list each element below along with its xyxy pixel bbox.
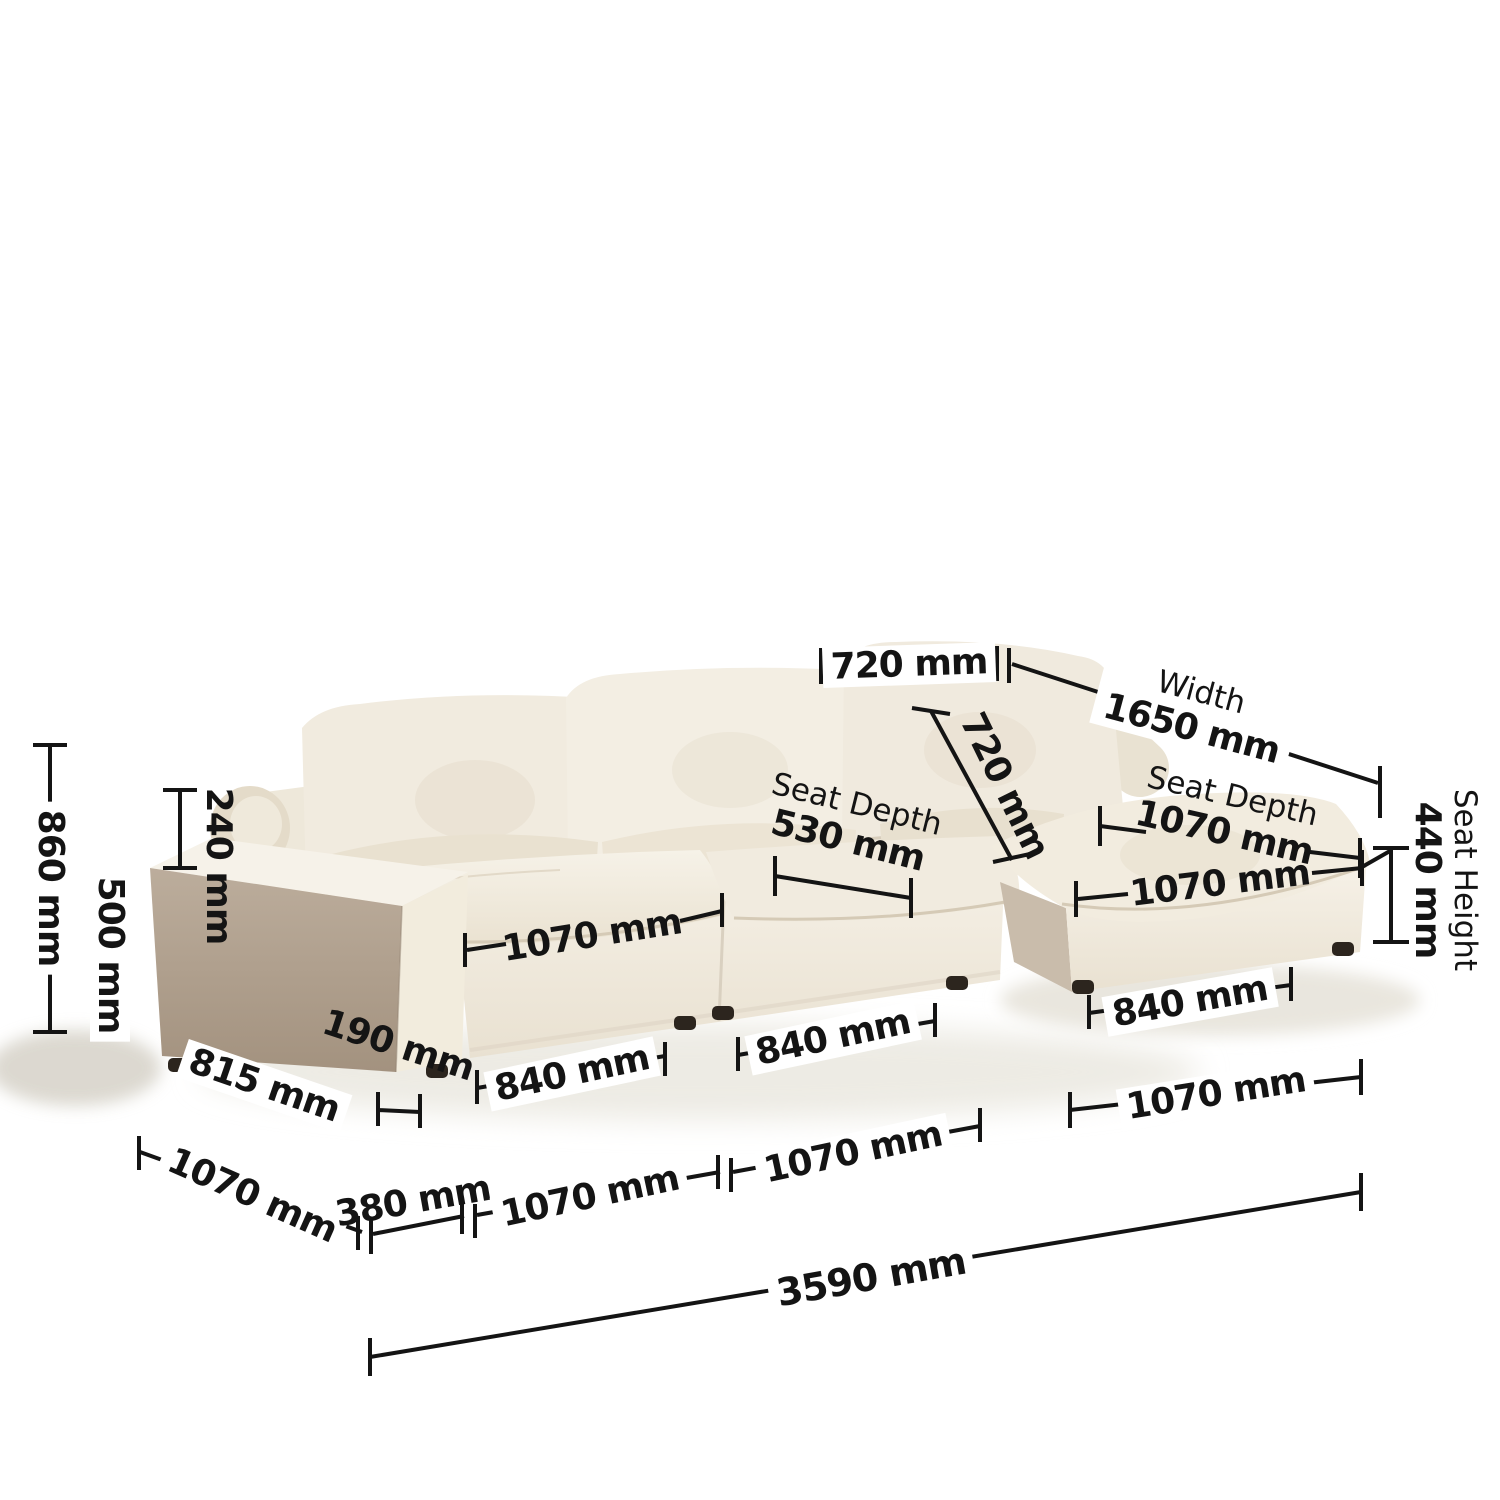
dim-label-overall-height: 860 mm bbox=[30, 802, 70, 975]
dim-label-seat-height: Seat Height 440 mm bbox=[1409, 789, 1481, 971]
dimension-diagram: 720 mm Width 1650 mm 720 mm Seat Depth 5… bbox=[0, 0, 1500, 1500]
dim-line-backrest-above-arm bbox=[163, 790, 197, 868]
dim-line-seat-height bbox=[1373, 848, 1409, 942]
dim-label-backrest-above-arm: 240 mm bbox=[200, 788, 236, 945]
dim-label-arm-height: 500 mm bbox=[90, 869, 130, 1042]
dim-label-back-width: 720 mm bbox=[822, 642, 996, 688]
dim-line-arm-thickness bbox=[378, 1092, 420, 1128]
seat-height-caption: Seat Height bbox=[1449, 789, 1482, 971]
seat-height-value: 440 mm bbox=[1409, 789, 1447, 971]
